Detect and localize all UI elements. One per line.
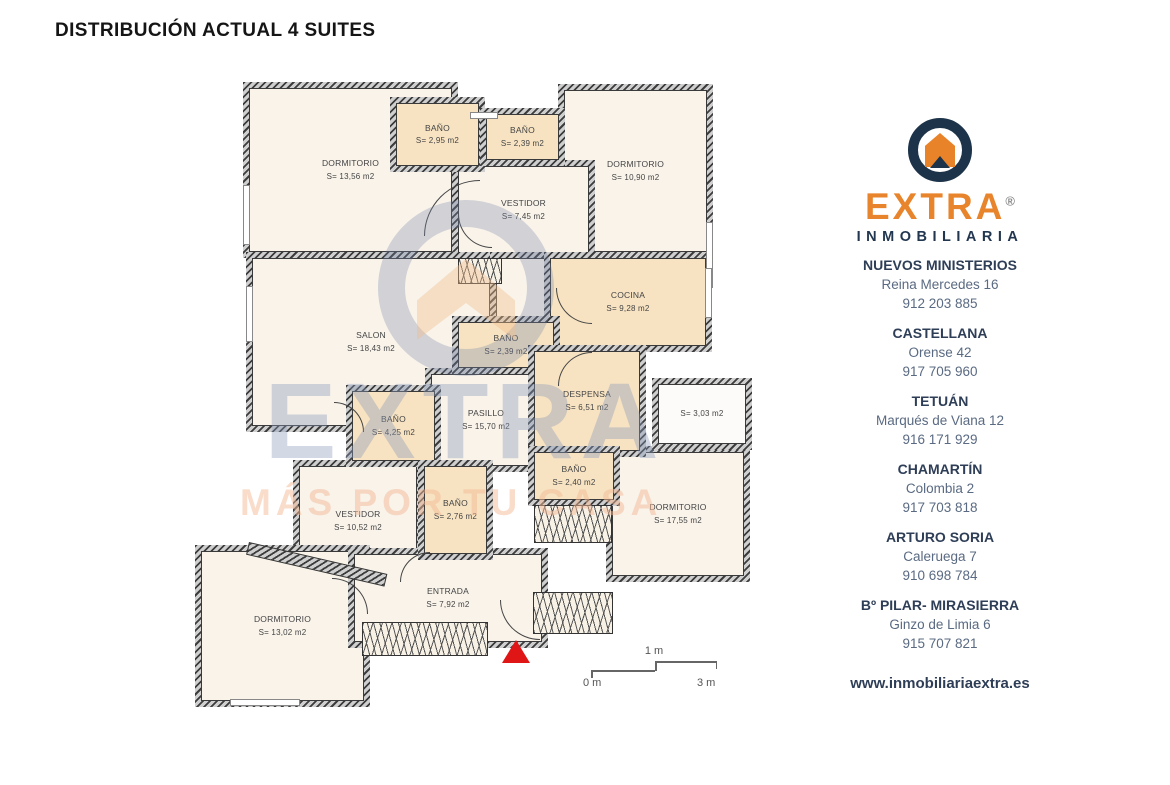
watermark-slogan: MÁS POR TU CASA (240, 482, 660, 524)
office-phone: 916 171 929 (835, 430, 1045, 449)
office-address: Ginzo de Limia 6 (835, 615, 1045, 634)
scale-line (655, 661, 657, 671)
registered-mark: ® (1005, 194, 1015, 209)
office-chamartin: CHAMARTÍN Colombia 2 917 703 818 (835, 460, 1045, 517)
window-icon (246, 286, 253, 342)
office-name: NUEVOS MINISTERIOS (835, 256, 1045, 275)
brand-subtitle: INMOBILIARIA (835, 229, 1045, 245)
office-phone: 917 705 960 (835, 362, 1045, 381)
brand-name: EXTRA® (835, 188, 1045, 227)
office-address: Orense 42 (835, 343, 1045, 362)
room-bano-295: BAÑOS= 2,95 m2 (390, 97, 485, 172)
scale-label-3m: 3 m (697, 678, 715, 689)
scale-line (655, 661, 717, 663)
office-phone: 917 703 818 (835, 498, 1045, 517)
office-nuevos-ministerios: NUEVOS MINISTERIOS Reina Mercedes 16 912… (835, 256, 1045, 313)
agency-logo-icon (908, 118, 972, 182)
logo-chevron-icon (930, 156, 950, 168)
window-icon (243, 185, 250, 245)
office-phone: 910 698 784 (835, 566, 1045, 585)
website-url: www.inmobiliariaextra.es (835, 675, 1045, 692)
office-phone: 912 203 885 (835, 294, 1045, 313)
office-address: Reina Mercedes 16 (835, 275, 1045, 294)
scale-line (591, 670, 655, 672)
agency-panel: EXTRA® INMOBILIARIA NUEVOS MINISTERIOS R… (835, 118, 1045, 692)
office-address: Marqués de Viana 12 (835, 411, 1045, 430)
office-name: Bº PILAR- MIRASIERRA (835, 596, 1045, 615)
entrance-marker-icon (502, 640, 530, 663)
office-address: Caleruega 7 (835, 547, 1045, 566)
office-pilar-mirasierra: Bº PILAR- MIRASIERRA Ginzo de Limia 6 91… (835, 596, 1045, 653)
office-name: ARTURO SORIA (835, 528, 1045, 547)
wardrobe-icon (362, 622, 488, 656)
window-icon (470, 112, 498, 119)
office-castellana: CASTELLANA Orense 42 917 705 960 (835, 324, 1045, 381)
window-icon (230, 699, 300, 706)
office-name: CHAMARTÍN (835, 460, 1045, 479)
window-icon (705, 268, 712, 318)
office-name: TETUÁN (835, 392, 1045, 411)
scale-line (716, 661, 718, 669)
scale-label-1m: 1 m (619, 646, 689, 657)
wardrobe-icon (533, 592, 613, 634)
office-arturo-soria: ARTURO SORIA Caleruega 7 910 698 784 (835, 528, 1045, 585)
office-tetuan: TETUÁN Marqués de Viana 12 916 171 929 (835, 392, 1045, 449)
scale-label-0m: 0 m (583, 678, 601, 689)
office-address: Colombia 2 (835, 479, 1045, 498)
office-name: CASTELLANA (835, 324, 1045, 343)
watermark-brand: EXTRA (222, 358, 708, 483)
scale-bar: 1 m 0 m 3 m (585, 646, 730, 691)
office-phone: 915 707 821 (835, 634, 1045, 653)
